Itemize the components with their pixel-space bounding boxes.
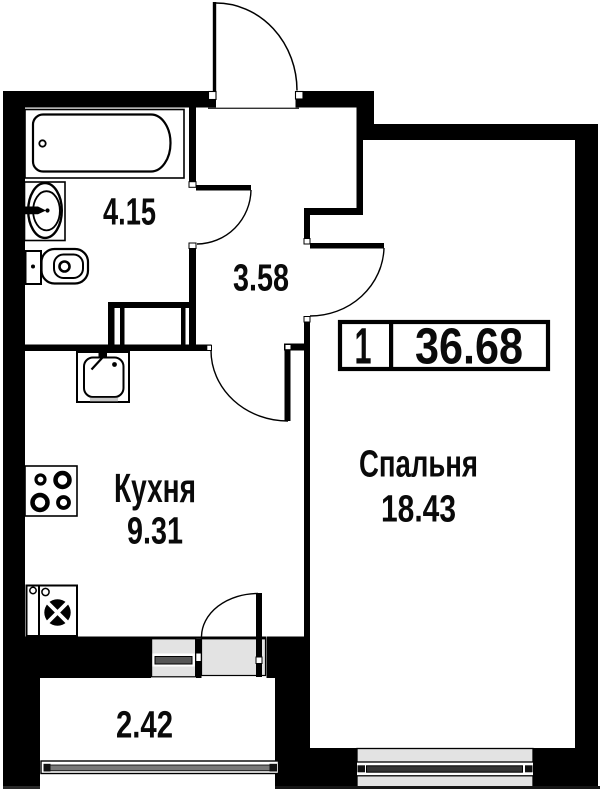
svg-text:Спальня: Спальня: [359, 444, 478, 486]
svg-text:Кухня: Кухня: [114, 465, 196, 511]
svg-text:9.31: 9.31: [127, 511, 183, 553]
svg-text:2.42: 2.42: [116, 705, 173, 747]
svg-text:4.15: 4.15: [103, 192, 156, 234]
svg-text:18.43: 18.43: [381, 489, 456, 531]
svg-text:1: 1: [355, 318, 372, 375]
svg-text:3.58: 3.58: [233, 258, 289, 300]
svg-text:36.68: 36.68: [415, 318, 523, 375]
